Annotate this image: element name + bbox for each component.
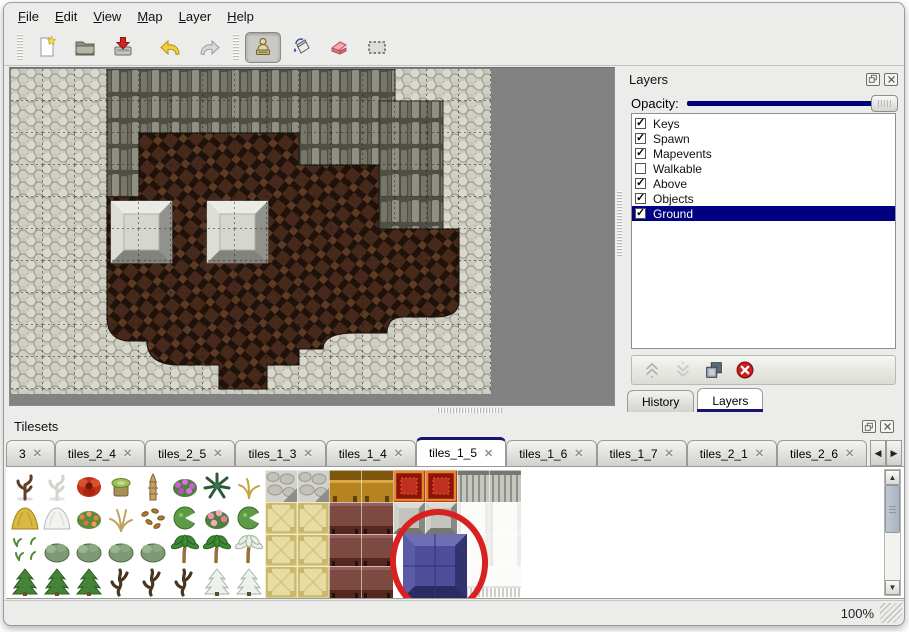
delete-layer-button[interactable] <box>733 358 757 382</box>
tile-gray-blocks[interactable] <box>425 502 457 534</box>
scrollbar-thumb[interactable] <box>885 485 900 533</box>
select-tool-button[interactable] <box>359 32 395 63</box>
tile-twisted-tree[interactable] <box>137 566 169 598</box>
splitter-grip[interactable] <box>617 191 622 257</box>
tile-tatami[interactable] <box>297 566 329 598</box>
layer-name: Objects <box>653 192 694 206</box>
menu-bar: FileEditViewMapLayerHelp <box>4 3 904 29</box>
toolbar <box>4 29 904 66</box>
tile-twisted-tree[interactable] <box>105 566 137 598</box>
layer-name: Above <box>653 177 687 191</box>
tileset-tab-tiles_2_4[interactable]: tiles_2_4✕ <box>55 440 145 466</box>
window-resize-grip[interactable] <box>880 603 902 623</box>
tile-purple-flowers[interactable] <box>169 470 201 502</box>
tile-tatami[interactable] <box>297 502 329 534</box>
save-import-button[interactable] <box>105 32 141 63</box>
menu-layer[interactable]: Layer <box>179 9 212 24</box>
tile-tatami[interactable] <box>265 566 297 598</box>
layer-row-objects[interactable]: ✓Objects <box>632 191 895 206</box>
tile-snow-fir[interactable] <box>201 566 233 598</box>
layer-name: Keys <box>653 117 680 131</box>
move-up-icon <box>641 359 663 381</box>
layer-row-ground[interactable]: ✓Ground <box>632 206 895 221</box>
float-panel-icon[interactable] <box>862 420 876 433</box>
opacity-slider-thumb[interactable] <box>871 95 898 112</box>
layer-name: Mapevents <box>653 147 712 161</box>
layer-name: Spawn <box>653 132 690 146</box>
tile-gray-curtain[interactable] <box>457 470 489 502</box>
tile-brown-table[interactable] <box>329 502 361 534</box>
map-viewport[interactable] <box>9 67 615 406</box>
eraser-tool-icon <box>327 35 351 59</box>
tile-tatami[interactable] <box>297 534 329 566</box>
tile-gray-curtain[interactable] <box>489 470 521 502</box>
tile-leaf-litter[interactable] <box>137 502 169 534</box>
tab-label: tiles_1_6 <box>519 447 567 461</box>
save-import-icon <box>111 35 135 59</box>
tile-snow-palm[interactable] <box>233 534 265 566</box>
layer-row-mapevents[interactable]: ✓Mapevents <box>632 146 895 161</box>
tile-bush[interactable] <box>105 534 137 566</box>
layer-visibility-checkbox[interactable]: ✓ <box>635 178 646 189</box>
menu-edit[interactable]: Edit <box>55 9 77 24</box>
tile-sprouts[interactable] <box>9 534 41 566</box>
tile-stone-floor[interactable] <box>265 470 297 502</box>
tileset-tab-3[interactable]: 3✕ <box>6 440 55 466</box>
tile-gold-table[interactable] <box>361 470 393 502</box>
tab-label: 3 <box>19 447 26 461</box>
tile-dead-tree[interactable] <box>9 470 41 502</box>
tile-stone-floor[interactable] <box>297 470 329 502</box>
tab-close-icon[interactable]: ✕ <box>484 447 493 460</box>
layer-actions-bar <box>631 355 896 385</box>
select-tool-icon <box>365 35 389 59</box>
vertical-splitter[interactable] <box>615 67 623 406</box>
toolbar-tools-group <box>244 32 396 63</box>
layers-panel: Layers Opacity: ✓Keys✓Spawn✓MapeventsWal… <box>623 66 904 412</box>
layer-visibility-checkbox[interactable]: ✓ <box>635 133 646 144</box>
tab-label: tiles_2_6 <box>790 447 838 461</box>
toolbar-file-group <box>28 32 142 63</box>
tile-brown-table[interactable] <box>329 566 361 598</box>
tile-conifer[interactable] <box>73 566 105 598</box>
tile-bush[interactable] <box>73 534 105 566</box>
close-panel-icon[interactable] <box>880 420 894 433</box>
layer-list: ✓Keys✓Spawn✓MapeventsWalkable✓Above✓Obje… <box>631 113 896 349</box>
tab-label: tiles_2_5 <box>158 447 206 461</box>
layer-name: Walkable <box>653 162 702 176</box>
layer-row-above[interactable]: ✓Above <box>632 176 895 191</box>
tab-close-icon[interactable]: ✕ <box>394 447 403 460</box>
layer-row-walkable[interactable]: Walkable <box>632 161 895 176</box>
tab-close-icon[interactable]: ✕ <box>303 447 312 460</box>
tile-stump[interactable] <box>105 470 137 502</box>
undo-button[interactable] <box>153 32 189 63</box>
tile-white-block[interactable] <box>489 502 521 534</box>
layer-visibility-checkbox[interactable] <box>635 163 646 174</box>
tileset-tab-tiles_2_5[interactable]: tiles_2_5✕ <box>145 440 235 466</box>
tile-brown-table[interactable] <box>361 534 393 566</box>
new-file-icon <box>35 35 59 59</box>
tile-tatami[interactable] <box>265 534 297 566</box>
opacity-label: Opacity: <box>631 96 679 111</box>
tile-white-block[interactable] <box>457 502 489 534</box>
fill-tool-button[interactable] <box>283 32 319 63</box>
stamp-tool-icon <box>251 35 275 59</box>
move-up-button[interactable] <box>640 358 664 382</box>
tab-label: tiles_2_1 <box>700 447 748 461</box>
tab-label: tiles_2_4 <box>68 447 116 461</box>
tab-scroll-right-icon[interactable]: ▶ <box>886 440 902 466</box>
toolbar-history-group <box>152 32 228 63</box>
delete-layer-icon <box>734 359 756 381</box>
tileset-tab-tiles_1_6[interactable]: tiles_1_6✕ <box>506 440 596 466</box>
fill-tool-icon <box>289 35 313 59</box>
tab-label: tiles_1_7 <box>610 447 658 461</box>
tab-label: tiles_1_3 <box>248 447 296 461</box>
close-panel-icon[interactable] <box>884 73 898 86</box>
tile-snow-fir[interactable] <box>233 566 265 598</box>
tile-brown-table[interactable] <box>361 566 393 598</box>
tile-conifer[interactable] <box>41 566 73 598</box>
tile-hay-mound[interactable] <box>9 502 41 534</box>
tileset-tab-tiles_1_4[interactable]: tiles_1_4✕ <box>326 440 416 466</box>
undo-icon <box>159 35 183 59</box>
tab-label: tiles_1_4 <box>339 447 387 461</box>
layer-visibility-checkbox[interactable]: ✓ <box>635 118 646 129</box>
new-file-button[interactable] <box>29 32 65 63</box>
tile-white-fringe[interactable] <box>489 566 521 598</box>
tile-palm-trunk[interactable] <box>137 470 169 502</box>
tile-white-tree[interactable] <box>41 470 73 502</box>
tileset-scrollbar[interactable]: ▲ ▼ <box>884 469 901 596</box>
tile-red-carpet[interactable] <box>393 470 425 502</box>
tile-bush[interactable] <box>137 534 169 566</box>
scroll-down-icon[interactable]: ▼ <box>885 580 900 595</box>
tab-close-icon[interactable]: ✕ <box>123 447 132 460</box>
tile-red-carpet[interactable] <box>425 470 457 502</box>
tab-close-icon[interactable]: ✕ <box>574 447 583 460</box>
toolbar-drag-handle[interactable] <box>17 34 23 60</box>
tile-dark-palm[interactable] <box>201 470 233 502</box>
tile-pink-flowers[interactable] <box>201 502 233 534</box>
tileset-tab-bar: 3✕tiles_2_4✕tiles_2_5✕tiles_1_3✕tiles_1_… <box>6 437 868 466</box>
tab-close-icon[interactable]: ✕ <box>33 447 42 460</box>
tile-orange-flowers[interactable] <box>73 502 105 534</box>
tile-tatami[interactable] <box>265 502 297 534</box>
status-bar: 100% <box>4 600 904 625</box>
app-window: FileEditViewMapLayerHelp <box>3 2 905 626</box>
duplicate-layer-button[interactable] <box>702 358 726 382</box>
menu-file[interactable]: File <box>18 9 39 24</box>
layer-visibility-checkbox[interactable]: ✓ <box>635 208 646 219</box>
tileset-tab-tiles_2_6[interactable]: tiles_2_6✕ <box>777 440 867 466</box>
toolbar-drag-handle[interactable] <box>233 34 239 60</box>
tile-red-flower[interactable] <box>73 470 105 502</box>
tab-close-icon[interactable]: ✕ <box>665 447 674 460</box>
tab-close-icon[interactable]: ✕ <box>845 447 854 460</box>
tab-close-icon[interactable]: ✕ <box>213 447 222 460</box>
layer-row-spawn[interactable]: ✓Spawn <box>632 131 895 146</box>
menu-help[interactable]: Help <box>227 9 254 24</box>
layer-visibility-checkbox[interactable]: ✓ <box>635 148 646 159</box>
duplicate-layer-icon <box>703 359 725 381</box>
tab-close-icon[interactable]: ✕ <box>755 447 764 460</box>
scroll-up-icon[interactable]: ▲ <box>885 470 900 485</box>
menu-map[interactable]: Map <box>137 9 162 24</box>
tileset-content[interactable]: ▲ ▼ <box>6 466 904 599</box>
tile-palm-tree[interactable] <box>201 534 233 566</box>
tilesets-panel: Tilesets 3✕tiles_2_4✕tiles_2_5✕tiles_1_3… <box>6 414 904 603</box>
tile-brown-table[interactable] <box>329 534 361 566</box>
layers-panel-tabs: HistoryLayers <box>627 388 766 412</box>
opacity-slider-track[interactable] <box>687 101 898 106</box>
stamp-tool-button[interactable] <box>245 32 281 63</box>
tile-gray-blocks[interactable] <box>393 502 425 534</box>
tile-brown-table[interactable] <box>361 502 393 534</box>
eraser-tool-button[interactable] <box>321 32 357 63</box>
layer-row-keys[interactable]: ✓Keys <box>632 116 895 131</box>
tile-dry-grass[interactable] <box>105 502 137 534</box>
tile-twisted-tree[interactable] <box>169 566 201 598</box>
tileset-tab-tiles_1_3[interactable]: tiles_1_3✕ <box>235 440 325 466</box>
splitter-grip[interactable] <box>437 408 503 413</box>
tile-white-block[interactable] <box>489 534 521 566</box>
tileset-tab-tiles_1_5[interactable]: tiles_1_5✕ <box>416 437 506 466</box>
menu-view[interactable]: View <box>93 9 121 24</box>
open-folder-button[interactable] <box>67 32 103 63</box>
tile-lily-pad[interactable] <box>233 502 265 534</box>
tile-conifer[interactable] <box>9 566 41 598</box>
redo-icon <box>197 35 221 59</box>
map-canvas[interactable] <box>11 69 491 394</box>
redo-button[interactable] <box>191 32 227 63</box>
tile-gold-table[interactable] <box>329 470 361 502</box>
layer-name: Ground <box>653 207 693 221</box>
tile-lily-pad[interactable] <box>169 502 201 534</box>
tile-blue-block[interactable] <box>403 534 467 598</box>
tile-yellow-plant[interactable] <box>233 470 265 502</box>
open-folder-icon <box>73 35 97 59</box>
zoom-level: 100% <box>841 606 874 621</box>
tileset-tab-tiles_2_1[interactable]: tiles_2_1✕ <box>687 440 777 466</box>
tab-scroll-left-icon[interactable]: ◀ <box>870 440 886 466</box>
tile-palm-tree[interactable] <box>169 534 201 566</box>
tilesets-panel-title: Tilesets <box>14 419 58 434</box>
float-panel-icon[interactable] <box>866 73 880 86</box>
opacity-slider[interactable] <box>687 95 898 112</box>
tileset-tab-tiles_1_7[interactable]: tiles_1_7✕ <box>597 440 687 466</box>
move-down-icon <box>672 359 694 381</box>
panel-tab-history[interactable]: History <box>627 390 694 412</box>
layer-visibility-checkbox[interactable]: ✓ <box>635 193 646 204</box>
layers-panel-title: Layers <box>629 72 668 87</box>
panel-tab-layers[interactable]: Layers <box>697 388 763 412</box>
tile-snow-mound[interactable] <box>41 502 73 534</box>
tab-label: tiles_1_5 <box>429 446 477 460</box>
move-down-button[interactable] <box>671 358 695 382</box>
tile-bush[interactable] <box>41 534 73 566</box>
